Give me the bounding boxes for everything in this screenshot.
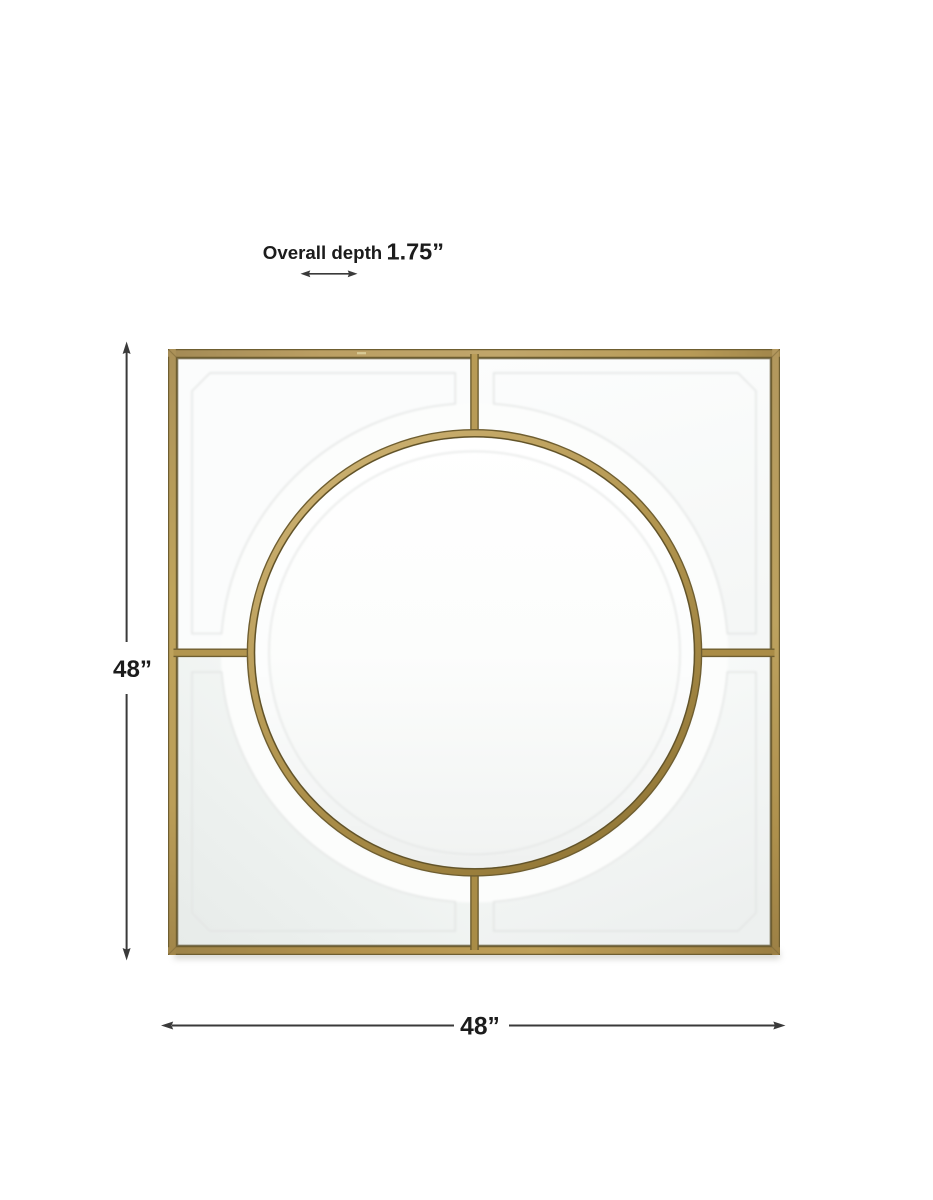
svg-text:1.75”: 1.75” <box>387 239 445 265</box>
svg-text:48”: 48” <box>113 656 152 683</box>
svg-text:48”: 48” <box>460 1014 500 1041</box>
svg-text:Overall depth: Overall depth <box>263 242 382 263</box>
